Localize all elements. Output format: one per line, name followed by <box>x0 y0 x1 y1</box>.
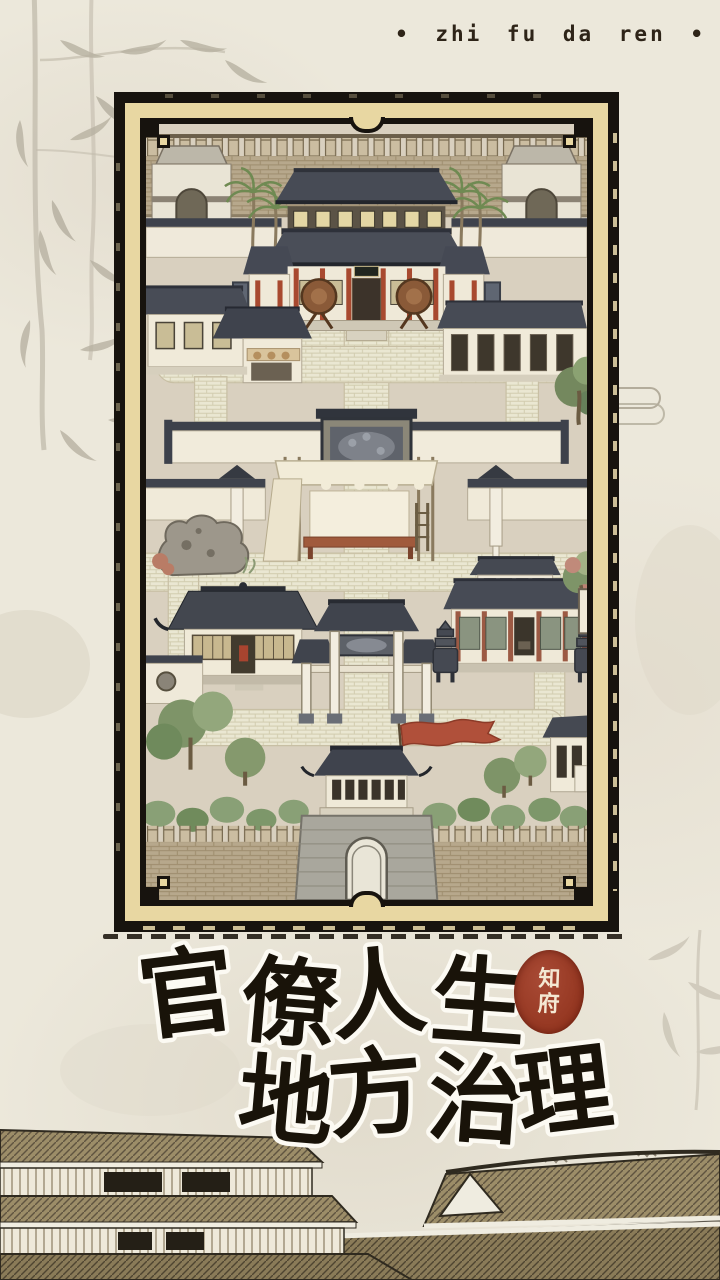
prefect-seal-stamp: 知 府 <box>513 949 586 1035</box>
frame-corner-square <box>563 135 576 148</box>
frame-corner-block <box>143 887 159 903</box>
ink-roofs-right <box>196 1152 720 1280</box>
frame-corner-block <box>574 121 590 137</box>
title-line2-text: 地方治理 <box>234 1034 618 1160</box>
seal-char-top: 知 <box>538 967 561 992</box>
game-title-line2: 地方治理 <box>230 1034 654 1160</box>
frame-dash-right <box>613 133 617 891</box>
frame-dash-top <box>165 94 568 98</box>
west-garden-wall <box>146 655 203 703</box>
frame-corner-square <box>563 876 576 889</box>
frame-corner-square <box>157 135 170 148</box>
frame-dash-left <box>116 163 120 861</box>
watch-tower-left <box>152 146 231 230</box>
pinyin-game-title: • zhi fu da ren • <box>395 22 706 46</box>
map-frame <box>114 92 619 932</box>
frame-corner-block <box>574 887 590 903</box>
frame-corner-square <box>157 876 170 889</box>
yamen-map-illustration <box>146 124 587 900</box>
seal-char-bottom: 府 <box>537 992 560 1017</box>
map-inner-border <box>140 118 593 906</box>
frame-dash-bottom <box>143 926 590 930</box>
watch-tower-right <box>502 146 581 230</box>
bamboo-right-of-title <box>648 930 720 1110</box>
